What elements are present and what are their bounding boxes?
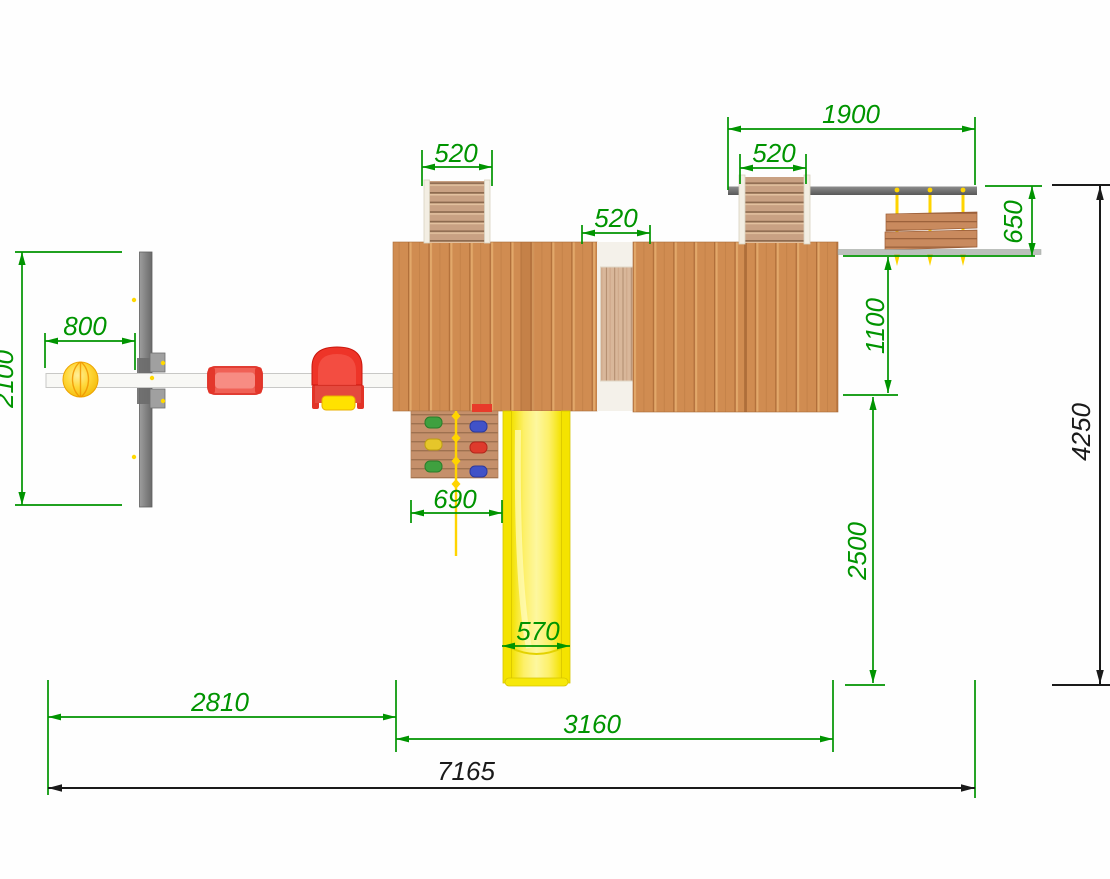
- slide-end-lip: [505, 678, 568, 686]
- bridge-floor: [601, 267, 634, 381]
- playground-plan-drawing: 520 520 520 1900 800 2100: [0, 0, 1110, 879]
- left-deck-dark-plank: [520, 242, 534, 411]
- right-tower-deck: [633, 242, 838, 412]
- dim-label-2100: 2100: [0, 350, 19, 409]
- dim-label-520-bridge: 520: [594, 203, 638, 233]
- swing-hub-block-bottom: [150, 389, 165, 408]
- dim-label-520-left: 520: [434, 138, 478, 168]
- left-ladder-steps: [430, 181, 485, 243]
- slide-rail-left: [503, 411, 512, 683]
- right-deck-seam: [744, 242, 747, 412]
- lower-support-rail: [838, 250, 1041, 255]
- left-ladder-rail: [485, 180, 491, 243]
- dim-label-520-right: 520: [752, 138, 796, 168]
- swing-set: [46, 252, 393, 507]
- right-ladder-steps: [745, 177, 804, 243]
- dim-label-3160: 3160: [563, 709, 621, 739]
- dim-label-690: 690: [433, 484, 477, 514]
- dim-label-2810: 2810: [190, 687, 249, 717]
- left-tower-deck: [393, 242, 597, 411]
- dim-label-4250: 4250: [1066, 403, 1096, 461]
- climbing-wall: [411, 404, 498, 556]
- baby-swing-seat: [312, 347, 364, 410]
- slide-rail-right: [562, 411, 571, 683]
- plan-svg: 520 520 520 1900 800 2100: [0, 0, 1110, 879]
- ball-swing-seat: [63, 362, 98, 397]
- dim-label-1100: 1100: [860, 298, 890, 354]
- left-ladder: [424, 180, 490, 243]
- bridge: [597, 242, 634, 411]
- dim-swing-bay-length: 2810: [48, 680, 396, 795]
- dim-label-7165: 7165: [437, 756, 495, 786]
- baby-swing-footrest: [322, 396, 355, 410]
- dim-rings-drop: 2500: [842, 397, 885, 685]
- dim-ladder-left-width: 520: [422, 138, 492, 186]
- right-ladder-rail: [804, 175, 810, 244]
- dim-swing-seat-offset: 800: [45, 311, 135, 370]
- rope-ladder-slat-bottom: [885, 230, 977, 250]
- dim-label-800: 800: [63, 311, 107, 341]
- dim-label-2500: 2500: [842, 522, 872, 581]
- left-ladder-rail: [424, 180, 430, 243]
- dim-label-1900: 1900: [822, 99, 880, 129]
- dim-label-570: 570: [516, 616, 560, 646]
- dim-label-650: 650: [998, 200, 1028, 244]
- flat-swing-seat: [208, 367, 262, 394]
- right-ladder-rail: [739, 175, 745, 244]
- dim-tower-bay-length: 3160: [396, 680, 833, 752]
- dim-rings-offset: 1100: [843, 257, 898, 395]
- rope-ladder-slat-top: [886, 212, 977, 231]
- dim-bridge-width: 520: [582, 203, 650, 244]
- dim-overall-depth: 4250: [1052, 185, 1110, 685]
- climbing-hold-red-top: [472, 404, 492, 412]
- right-ladder: [739, 175, 810, 244]
